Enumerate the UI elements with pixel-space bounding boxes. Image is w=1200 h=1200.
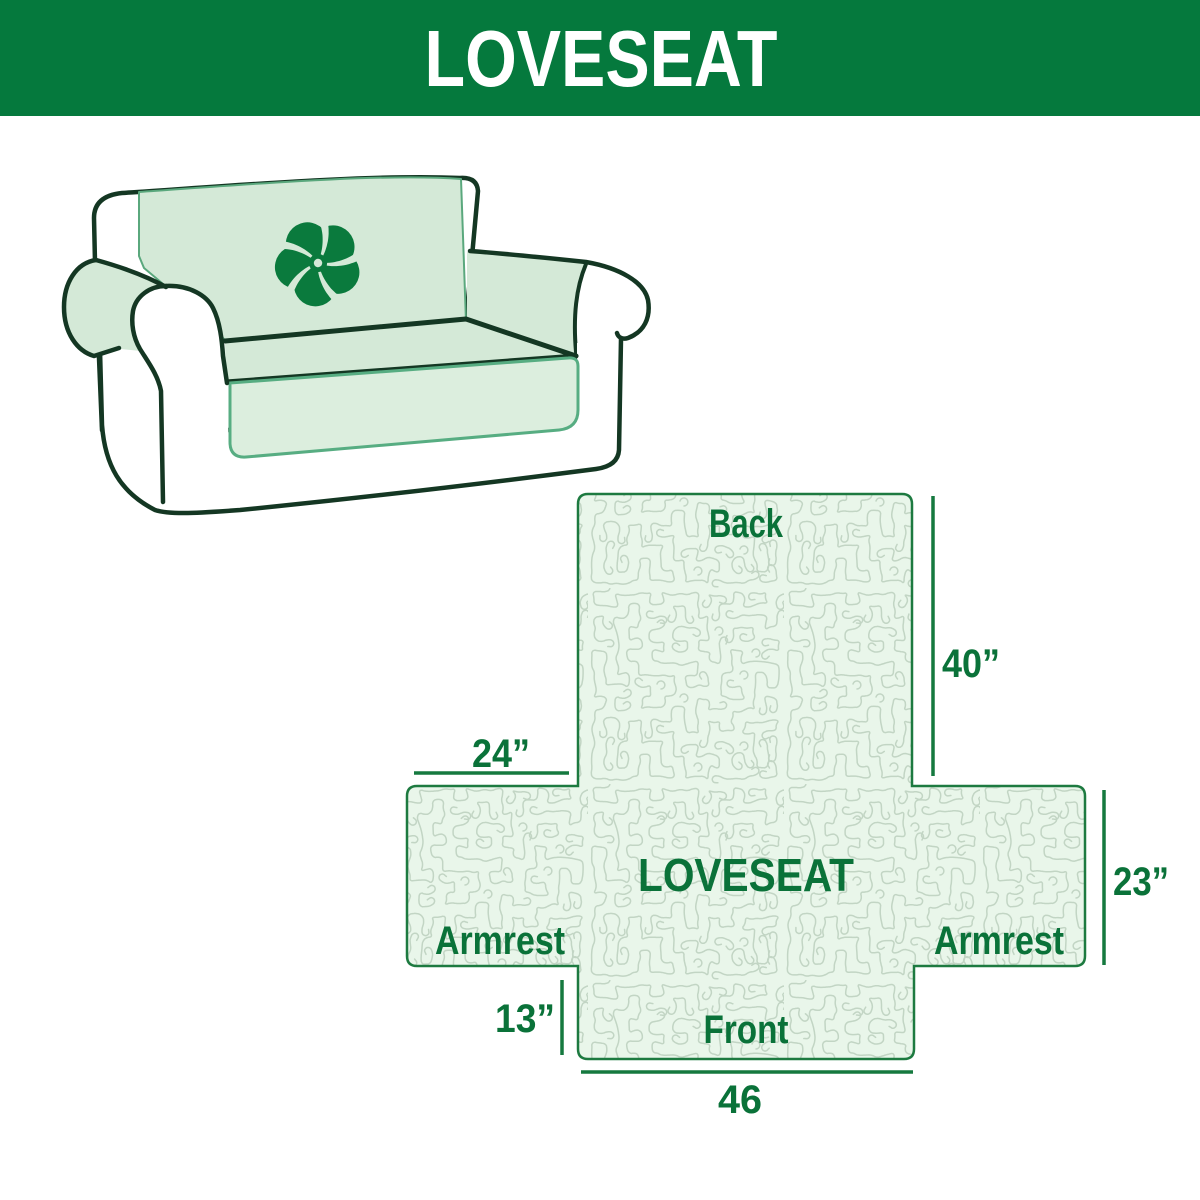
svg-text:40”: 40” xyxy=(942,642,1000,686)
svg-text:Back: Back xyxy=(709,502,784,546)
svg-text:Armrest: Armrest xyxy=(435,919,565,963)
svg-text:46: 46 xyxy=(718,1078,762,1122)
svg-text:23”: 23” xyxy=(1113,860,1169,904)
svg-text:LOVESEAT: LOVESEAT xyxy=(425,14,778,103)
svg-text:Armrest: Armrest xyxy=(934,919,1064,963)
svg-text:Front: Front xyxy=(704,1008,789,1052)
svg-text:LOVESEAT: LOVESEAT xyxy=(638,849,854,901)
svg-text:13”: 13” xyxy=(495,997,555,1041)
svg-text:24”: 24” xyxy=(472,732,530,776)
